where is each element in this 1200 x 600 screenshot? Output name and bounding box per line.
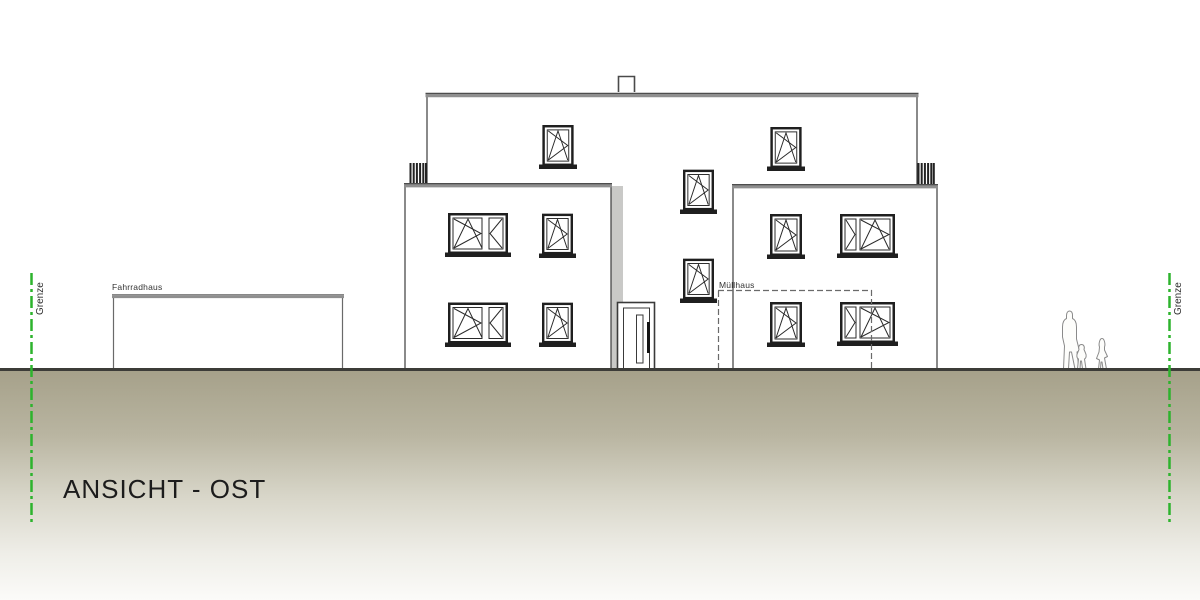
bike-shed-label: Fahrradhaus: [112, 282, 162, 292]
trash-house-label: Müllhaus: [719, 280, 755, 290]
drawing-title: ANSICHT - OST: [63, 474, 266, 505]
window-stair-upper: [680, 171, 717, 214]
right-wing: [732, 185, 938, 369]
roof-railing-left: [411, 163, 427, 183]
attic-storey: [426, 93, 919, 185]
window-attic-left: [539, 126, 577, 169]
person-child-1: [1077, 345, 1086, 370]
entrance-door: [618, 303, 655, 370]
window-right-ground-double: [837, 303, 898, 346]
window-right-upper-double: [837, 215, 898, 258]
elevation-drawing: Grenze Grenze Fahrradhaus Müllhaus ANSIC…: [0, 0, 1200, 600]
window-stair-lower: [680, 260, 717, 303]
person-adult: [1063, 311, 1080, 369]
boundary-label-right: Grenze: [1173, 282, 1184, 315]
window-right-ground-single: [767, 303, 805, 347]
people-silhouettes: [1063, 311, 1108, 369]
window-left-upper-double: [445, 214, 511, 257]
boundary-label-left: Grenze: [35, 282, 46, 315]
window-left-ground-single: [539, 304, 576, 347]
window-right-upper-single: [767, 215, 805, 259]
window-attic-right: [767, 128, 805, 171]
chimney: [619, 77, 635, 93]
person-child-2: [1097, 339, 1108, 370]
window-left-upper-single: [539, 215, 576, 258]
bike-shed: [112, 295, 344, 369]
building-elevation-svg: [0, 0, 1200, 600]
roof-railing-right: [919, 163, 934, 184]
door-glass-strip: [637, 315, 644, 363]
window-left-ground-double: [445, 304, 511, 347]
